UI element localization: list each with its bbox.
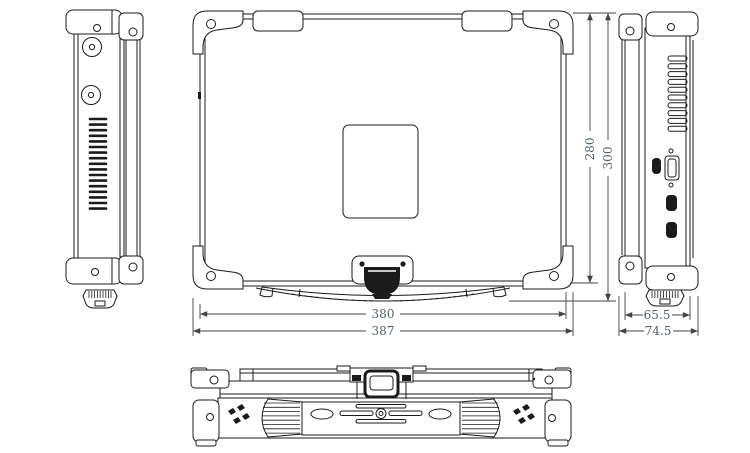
side-bumper-left: [193, 400, 219, 446]
corner-bumper-bottom: [66, 256, 143, 284]
corner-bumper-bottom-left: [193, 246, 243, 289]
corner-bumper-bottom-right: [523, 246, 573, 289]
technical-drawing-canvas: 380 387 280 300 65.5: [0, 0, 750, 453]
corner-bumper-top: [619, 12, 698, 40]
handle-end-left: [83, 290, 117, 308]
grip-rib-right: [460, 399, 500, 437]
serial-port: [665, 149, 679, 187]
vent-grille-right: [668, 56, 687, 131]
round-port-knobs: [82, 38, 102, 105]
dim-text-387: 387: [372, 324, 395, 338]
handle-end-right: [646, 290, 684, 306]
corner-bumper-top-right: [523, 11, 573, 54]
tread-dots-left: [228, 404, 250, 424]
dim-text-280: 280: [583, 138, 597, 161]
drawing-sheet: 380 387 280 300 65.5: [0, 0, 750, 453]
usb-port-2: [666, 222, 677, 238]
front-view: [191, 366, 571, 446]
dim-text-380: 380: [372, 307, 395, 321]
vent-grille-left: [90, 119, 106, 209]
corner-bumper-top-right: [533, 368, 571, 388]
top-view: [193, 11, 573, 301]
hinge-cover-right: [462, 11, 512, 31]
logo-plate: [343, 125, 418, 218]
tread-dots-right: [513, 404, 535, 424]
lid-rail: [126, 30, 140, 264]
left-side-view: [66, 10, 143, 308]
right-side-view: [619, 12, 698, 306]
hinge-cover-left: [253, 11, 303, 31]
handle-front-panel: [302, 402, 460, 435]
io-ports: [652, 149, 679, 238]
latch: [352, 256, 413, 299]
hdmi-port: [652, 158, 661, 174]
grip-rib-left: [262, 399, 302, 437]
usb-port-1: [666, 195, 677, 211]
dim-text-300: 300: [601, 147, 615, 170]
dim-text-74-5: 74.5: [645, 324, 672, 338]
corner-bumper-top-left: [191, 368, 229, 388]
dim-text-65-5: 65.5: [644, 308, 671, 322]
side-bumper-right: [545, 400, 571, 446]
corner-bumper-top-left: [193, 11, 243, 54]
